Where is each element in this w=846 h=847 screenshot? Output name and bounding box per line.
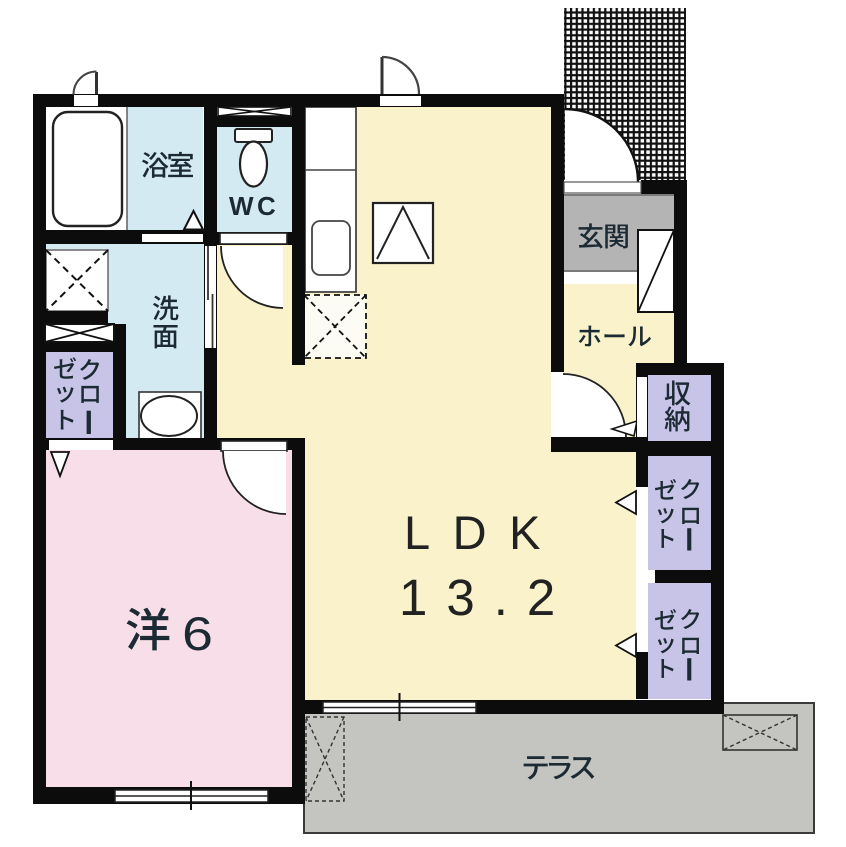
svg-text:13.2: 13.2 (399, 569, 574, 626)
svg-text:WC: WC (229, 191, 279, 221)
svg-text:6: 6 (182, 607, 213, 660)
svg-text:LDK: LDK (404, 506, 563, 559)
